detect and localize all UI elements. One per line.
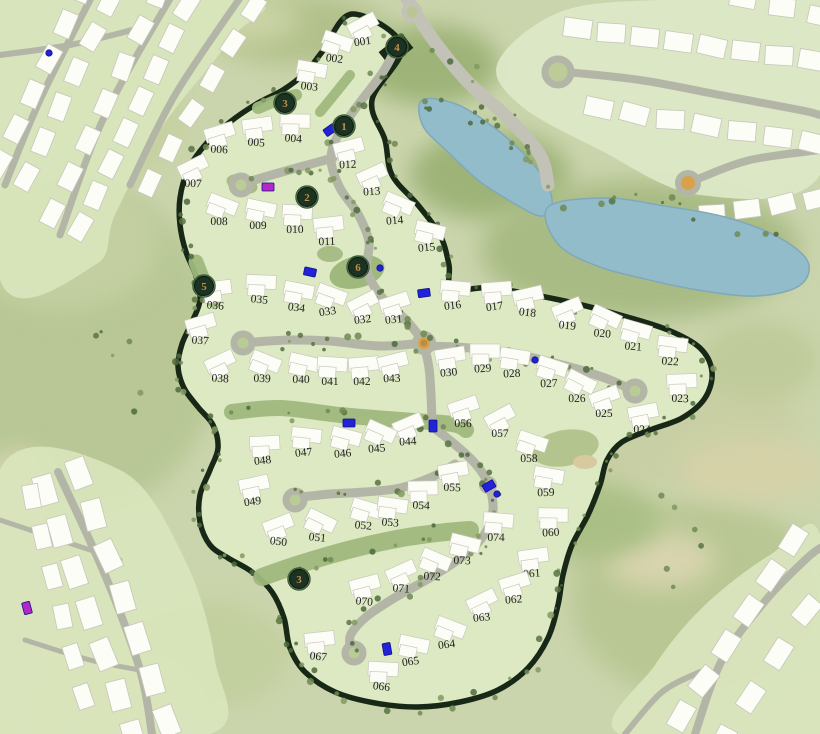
lot-number: 011 bbox=[318, 236, 335, 249]
amenity-blue-icon[interactable] bbox=[382, 642, 392, 655]
amenity-blue-icon[interactable] bbox=[429, 420, 437, 432]
marker-number: 3 bbox=[296, 574, 302, 586]
lot-number: 028 bbox=[503, 368, 521, 381]
lot-number: 074 bbox=[487, 532, 505, 544]
lot-number: 065 bbox=[401, 655, 420, 669]
lot-number: 038 bbox=[211, 373, 229, 386]
amenity-purple-icon[interactable] bbox=[262, 183, 274, 191]
lot-number: 013 bbox=[363, 185, 381, 198]
map-marker-3[interactable]: 3 bbox=[288, 568, 310, 590]
lot-number: 066 bbox=[372, 680, 391, 694]
map-marker-1[interactable]: 1 bbox=[333, 115, 355, 137]
lot-number: 014 bbox=[386, 214, 404, 227]
lot-number: 032 bbox=[353, 313, 372, 327]
lot-number: 005 bbox=[247, 136, 265, 149]
lot-number: 024 bbox=[633, 424, 651, 436]
lot-number: 020 bbox=[593, 327, 611, 340]
lot-number: 018 bbox=[518, 306, 537, 320]
lot-number: 040 bbox=[292, 374, 310, 386]
lot-number: 008 bbox=[210, 216, 228, 228]
map-canvas: 0010020030040050060070080090100110120130… bbox=[0, 0, 820, 734]
lot-number: 057 bbox=[491, 428, 509, 440]
lot-number: 045 bbox=[368, 442, 386, 455]
lot-number: 059 bbox=[537, 487, 555, 500]
map-marker-5[interactable]: 5 bbox=[193, 275, 215, 297]
lot-number: 058 bbox=[520, 453, 538, 465]
amenity-blue-icon[interactable] bbox=[377, 265, 383, 271]
map-marker-3[interactable]: 3 bbox=[274, 92, 296, 114]
lot-number: 039 bbox=[253, 373, 271, 386]
lot-number: 067 bbox=[309, 650, 328, 664]
lot-number: 034 bbox=[287, 301, 306, 315]
marker-number: 3 bbox=[282, 98, 288, 110]
lot-number: 025 bbox=[595, 408, 613, 420]
map-marker-2[interactable]: 2 bbox=[296, 186, 318, 208]
lot-number: 010 bbox=[286, 224, 304, 236]
lot-number: 071 bbox=[392, 582, 410, 595]
amenity-blue-icon[interactable] bbox=[343, 419, 355, 427]
lot-number: 029 bbox=[474, 362, 492, 375]
lot-number: 043 bbox=[383, 373, 401, 386]
lot-number: 026 bbox=[568, 393, 586, 405]
amenity-blue-icon[interactable] bbox=[494, 491, 500, 497]
lot-number: 052 bbox=[354, 519, 372, 532]
lot-number: 062 bbox=[505, 593, 523, 606]
map-marker-6[interactable]: 6 bbox=[347, 256, 369, 278]
lot-number: 016 bbox=[443, 299, 462, 313]
lot-number: 003 bbox=[300, 80, 319, 94]
lot-number: 037 bbox=[191, 334, 209, 347]
lot-number: 022 bbox=[661, 356, 679, 369]
marker-number: 5 bbox=[201, 281, 207, 293]
lot-number: 050 bbox=[269, 535, 288, 549]
lot-number: 048 bbox=[253, 454, 272, 468]
lot-number: 072 bbox=[423, 571, 441, 584]
lot-number: 047 bbox=[294, 446, 313, 460]
lot-number: 051 bbox=[308, 531, 327, 545]
marker-number: 2 bbox=[304, 192, 310, 204]
lot-number: 031 bbox=[384, 313, 403, 327]
marker-number: 1 bbox=[341, 121, 347, 133]
amenity-blue-icon[interactable] bbox=[532, 357, 538, 363]
lot-number: 054 bbox=[412, 500, 430, 513]
lot-number: 007 bbox=[184, 178, 202, 191]
marker-number: 4 bbox=[394, 42, 400, 54]
lot-number: 001 bbox=[353, 35, 372, 49]
map-marker-4[interactable]: 4 bbox=[386, 36, 408, 58]
lot-number: 033 bbox=[318, 305, 337, 319]
lot-number: 044 bbox=[399, 436, 417, 449]
lot-number: 009 bbox=[249, 220, 267, 232]
lot-number: 046 bbox=[334, 447, 352, 460]
lot-number: 006 bbox=[210, 144, 228, 157]
amenity-blue-icon[interactable] bbox=[46, 50, 52, 56]
lot-number: 015 bbox=[417, 241, 436, 255]
lot-number: 023 bbox=[671, 393, 689, 406]
lot-number: 056 bbox=[454, 418, 472, 430]
lot-number: 055 bbox=[443, 482, 461, 495]
lot-number: 004 bbox=[284, 132, 302, 145]
lot-number: 049 bbox=[243, 495, 262, 509]
lot-number: 060 bbox=[542, 527, 560, 540]
lot-number: 012 bbox=[339, 159, 357, 172]
lot-number: 035 bbox=[250, 293, 269, 307]
lot-number: 064 bbox=[437, 638, 456, 652]
lot-number: 027 bbox=[540, 378, 558, 391]
lot-number: 070 bbox=[355, 595, 373, 608]
lot-number: 041 bbox=[321, 376, 339, 388]
lot-number: 030 bbox=[440, 366, 458, 379]
lot-number: 017 bbox=[485, 300, 504, 314]
lot-number: 019 bbox=[558, 319, 577, 333]
marker-number: 6 bbox=[355, 262, 361, 274]
lot-number: 036 bbox=[206, 299, 224, 312]
lot-number: 063 bbox=[472, 611, 491, 625]
lot-number: 053 bbox=[381, 516, 399, 529]
lot-number: 073 bbox=[453, 555, 471, 568]
amenity-blue-icon[interactable] bbox=[418, 288, 431, 298]
lot-number: 002 bbox=[325, 52, 344, 66]
site-plan-map: 0010020030040050060070080090100110120130… bbox=[0, 0, 820, 734]
lot-number: 021 bbox=[624, 340, 642, 353]
lot-number: 042 bbox=[353, 376, 371, 388]
